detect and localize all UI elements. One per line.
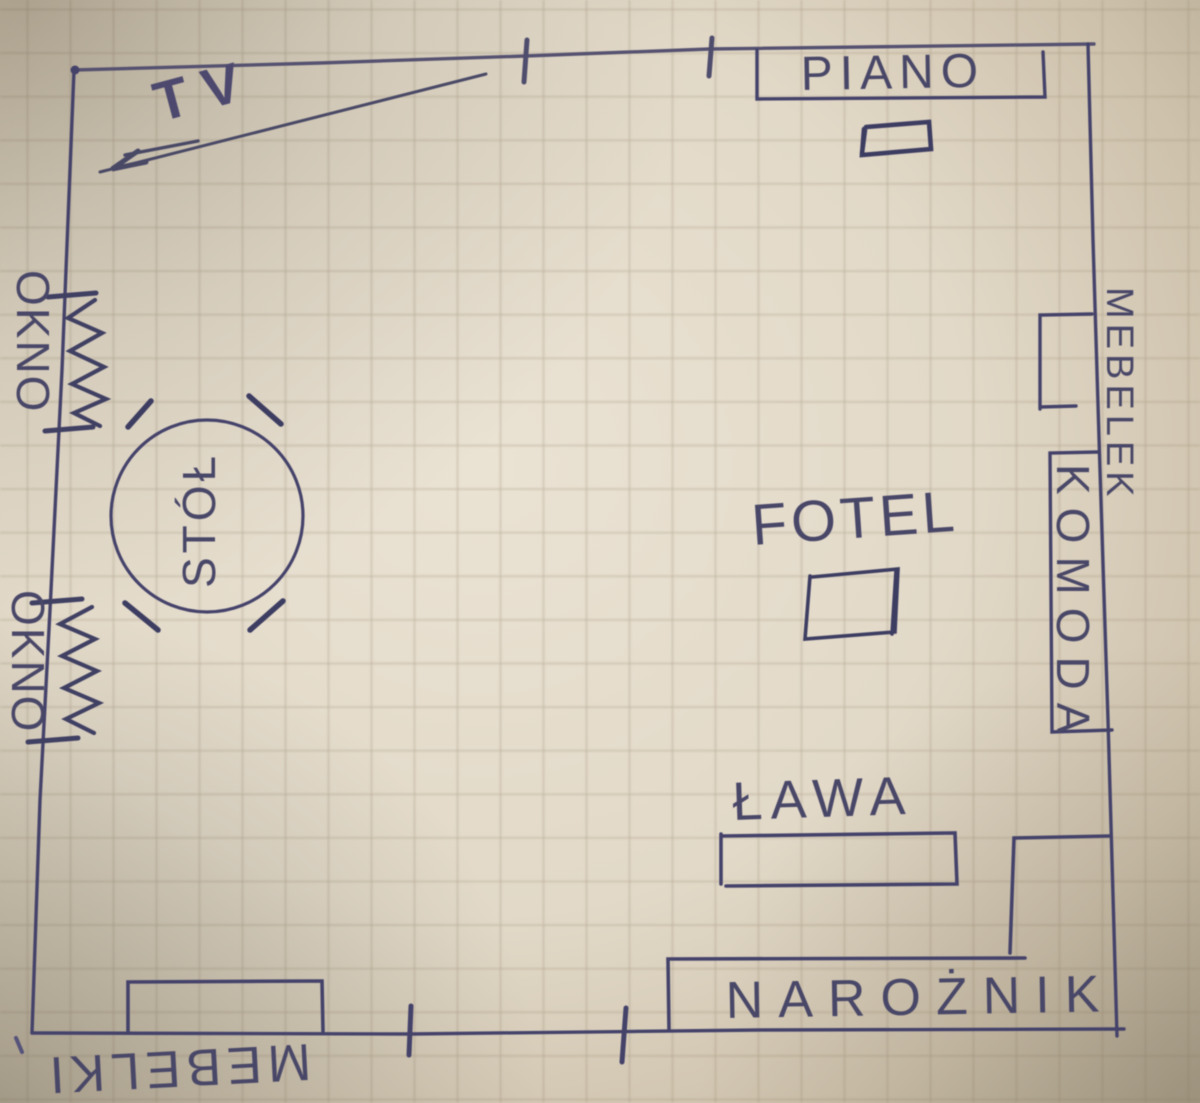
svg-text:OKNO: OKNO — [2, 590, 54, 733]
svg-text:NAROŻNIK: NAROŻNIK — [725, 965, 1115, 1030]
svg-text:PIANO: PIANO — [800, 45, 985, 101]
svg-text:STÓŁ: STÓŁ — [173, 452, 225, 588]
svg-text:OKNO: OKNO — [7, 270, 59, 413]
svg-text:KOMODA: KOMODA — [1047, 464, 1099, 746]
svg-text:ŁAWA: ŁAWA — [731, 766, 914, 832]
svg-text:MEBELEK: MEBELEK — [1098, 287, 1140, 502]
